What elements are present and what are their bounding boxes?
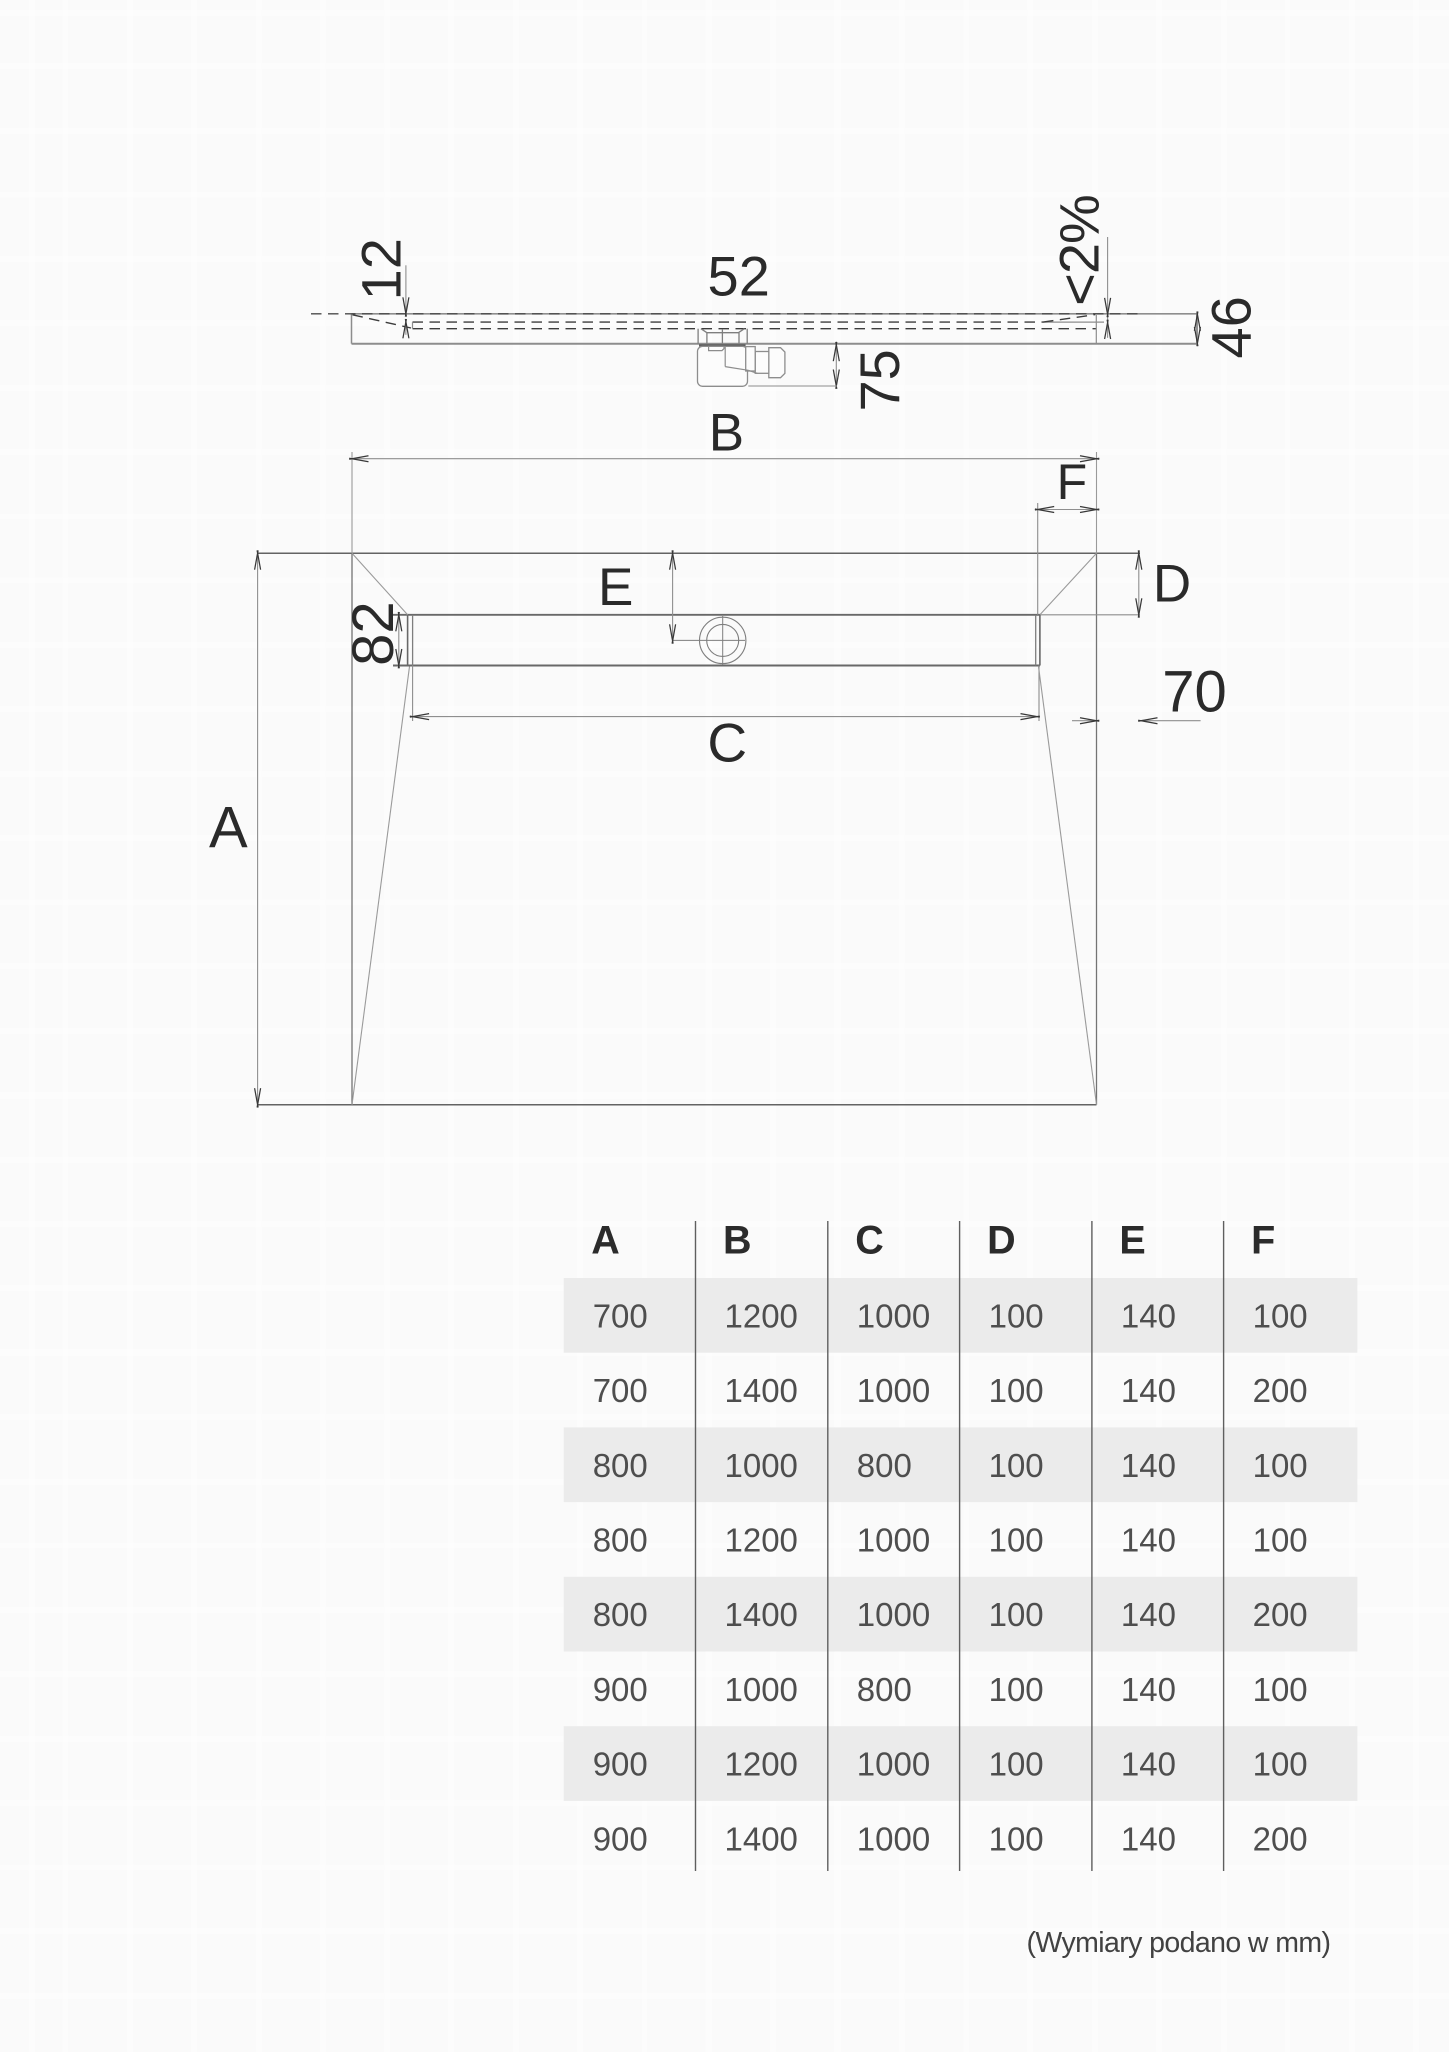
svg-text:100: 100 [989, 1297, 1044, 1334]
svg-text:100: 100 [1253, 1297, 1308, 1334]
svg-text:800: 800 [857, 1671, 912, 1708]
svg-text:200: 200 [1253, 1372, 1308, 1409]
svg-text:F: F [1251, 1218, 1275, 1262]
svg-text:100: 100 [989, 1596, 1044, 1633]
svg-text:200: 200 [1253, 1596, 1308, 1633]
svg-text:E: E [1119, 1218, 1145, 1262]
svg-text:900: 900 [593, 1746, 648, 1783]
svg-text:1200: 1200 [725, 1746, 798, 1783]
svg-text:800: 800 [593, 1596, 648, 1633]
svg-text:100: 100 [1253, 1522, 1308, 1559]
svg-text:100: 100 [989, 1372, 1044, 1409]
svg-text:100: 100 [989, 1746, 1044, 1783]
svg-text:140: 140 [1121, 1671, 1176, 1708]
svg-text:A: A [209, 796, 248, 861]
svg-text:F: F [1057, 454, 1088, 510]
svg-text:100: 100 [989, 1820, 1044, 1857]
svg-text:1000: 1000 [725, 1671, 798, 1708]
svg-text:140: 140 [1121, 1820, 1176, 1857]
svg-text:900: 900 [593, 1820, 648, 1857]
svg-text:900: 900 [593, 1671, 648, 1708]
svg-text:B: B [709, 403, 744, 462]
svg-text:100: 100 [1253, 1746, 1308, 1783]
svg-text:D: D [987, 1218, 1016, 1262]
svg-text:100: 100 [989, 1447, 1044, 1484]
svg-text:1200: 1200 [725, 1297, 798, 1334]
svg-text:75: 75 [848, 349, 911, 411]
svg-text:B: B [723, 1218, 752, 1262]
svg-text:C: C [855, 1218, 884, 1262]
svg-text:A: A [591, 1218, 620, 1262]
svg-text:70: 70 [1162, 660, 1227, 725]
svg-text:52: 52 [708, 244, 770, 307]
svg-text:1000: 1000 [857, 1522, 930, 1559]
svg-text:140: 140 [1121, 1596, 1176, 1633]
svg-text:E: E [598, 558, 633, 617]
svg-text:1400: 1400 [725, 1596, 798, 1633]
svg-text:800: 800 [593, 1522, 648, 1559]
svg-text:700: 700 [593, 1297, 648, 1334]
svg-text:1000: 1000 [857, 1596, 930, 1633]
svg-text:800: 800 [857, 1447, 912, 1484]
svg-text:800: 800 [593, 1447, 648, 1484]
svg-text:140: 140 [1121, 1746, 1176, 1783]
svg-text:1000: 1000 [857, 1820, 930, 1857]
svg-text:140: 140 [1121, 1297, 1176, 1334]
svg-text:D: D [1153, 555, 1191, 614]
svg-text:(Wymiary podano w mm): (Wymiary podano w mm) [1027, 1927, 1331, 1959]
svg-text:1000: 1000 [857, 1746, 930, 1783]
svg-text:46: 46 [1200, 296, 1263, 358]
svg-text:140: 140 [1121, 1447, 1176, 1484]
svg-text:12: 12 [349, 238, 412, 300]
svg-text:C: C [707, 712, 747, 774]
svg-text:1200: 1200 [725, 1522, 798, 1559]
svg-text:700: 700 [593, 1372, 648, 1409]
svg-text:1000: 1000 [857, 1297, 930, 1334]
svg-text:1000: 1000 [725, 1447, 798, 1484]
svg-text:1400: 1400 [725, 1372, 798, 1409]
svg-text:140: 140 [1121, 1372, 1176, 1409]
svg-text:82: 82 [341, 601, 406, 666]
svg-text:100: 100 [1253, 1447, 1308, 1484]
svg-text:<2%: <2% [1048, 195, 1111, 306]
svg-text:200: 200 [1253, 1820, 1308, 1857]
svg-text:1400: 1400 [725, 1820, 798, 1857]
svg-text:100: 100 [1253, 1671, 1308, 1708]
svg-text:100: 100 [989, 1671, 1044, 1708]
svg-text:100: 100 [989, 1522, 1044, 1559]
svg-text:1000: 1000 [857, 1372, 930, 1409]
svg-text:140: 140 [1121, 1522, 1176, 1559]
